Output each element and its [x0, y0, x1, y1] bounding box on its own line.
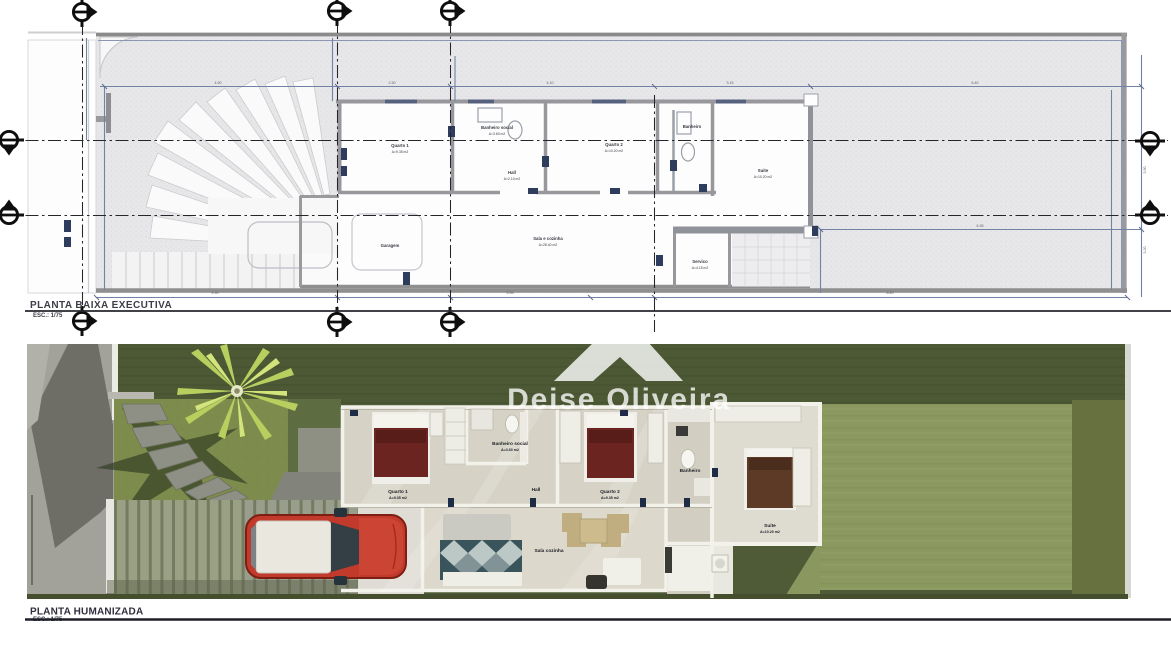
- svg-text:3.15: 3.15: [727, 81, 734, 85]
- svg-text:6.40: 6.40: [972, 81, 979, 85]
- svg-text:A=2.10 m2: A=2.10 m2: [504, 177, 521, 181]
- svg-text:Suite: Suite: [758, 168, 769, 173]
- svg-text:Servico: Servico: [692, 259, 708, 264]
- svg-text:A=9.35 m2: A=9.35 m2: [392, 150, 409, 154]
- svg-text:4.90: 4.90: [212, 291, 219, 295]
- svg-text:A=28.40 m2: A=28.40 m2: [539, 243, 557, 247]
- svg-text:Hall: Hall: [532, 487, 541, 493]
- svg-text:6.35: 6.35: [977, 224, 984, 228]
- svg-text:Sala cozinha: Sala cozinha: [534, 548, 563, 554]
- svg-text:ESC.: 1/75: ESC.: 1/75: [33, 313, 63, 319]
- svg-text:A=10.20 m2: A=10.20 m2: [754, 175, 772, 179]
- svg-text:Deise Oliveira: Deise Oliveira: [507, 383, 731, 416]
- svg-text:4.90: 4.90: [215, 81, 222, 85]
- svg-text:Banheiro: Banheiro: [680, 468, 701, 474]
- svg-text:Quarto 2: Quarto 2: [605, 142, 623, 147]
- svg-text:Quarto 1: Quarto 1: [388, 489, 408, 495]
- svg-text:Sala e cozinha: Sala e cozinha: [533, 236, 563, 241]
- svg-text:Quarto 2: Quarto 2: [600, 489, 620, 495]
- svg-text:5.95: 5.95: [507, 291, 514, 295]
- svg-text:Banheiro: Banheiro: [683, 124, 702, 129]
- svg-text:A=9.35 m2: A=9.35 m2: [389, 496, 407, 500]
- svg-text:A=3.60 m2: A=3.60 m2: [489, 132, 506, 136]
- svg-text:Banheiro social: Banheiro social: [492, 441, 528, 447]
- svg-text:Quarto 1: Quarto 1: [391, 143, 409, 148]
- svg-text:6.40: 6.40: [887, 291, 894, 295]
- svg-text:PLANTA BAIXA EXECUTIVA: PLANTA BAIXA EXECUTIVA: [30, 300, 172, 311]
- svg-text:4.10: 4.10: [547, 81, 554, 85]
- svg-text:A=3.60 m2: A=3.60 m2: [501, 448, 519, 452]
- svg-text:3.50: 3.50: [1143, 167, 1147, 174]
- svg-text:3.20: 3.20: [1143, 247, 1147, 254]
- svg-text:A=10.20 m2: A=10.20 m2: [605, 149, 623, 153]
- svg-text:PLANTA HUMANIZADA: PLANTA HUMANIZADA: [30, 607, 143, 618]
- svg-text:Garagem: Garagem: [381, 243, 400, 248]
- svg-text:Hall: Hall: [508, 170, 516, 175]
- svg-text:Suite: Suite: [764, 523, 776, 529]
- svg-text:A=10.20 m2: A=10.20 m2: [760, 530, 780, 534]
- svg-text:A=9.35 m2: A=9.35 m2: [601, 496, 619, 500]
- svg-text:A=4.15 m2: A=4.15 m2: [692, 266, 709, 270]
- svg-text:Banheiro social: Banheiro social: [481, 125, 513, 130]
- svg-text:2.30: 2.30: [389, 81, 396, 85]
